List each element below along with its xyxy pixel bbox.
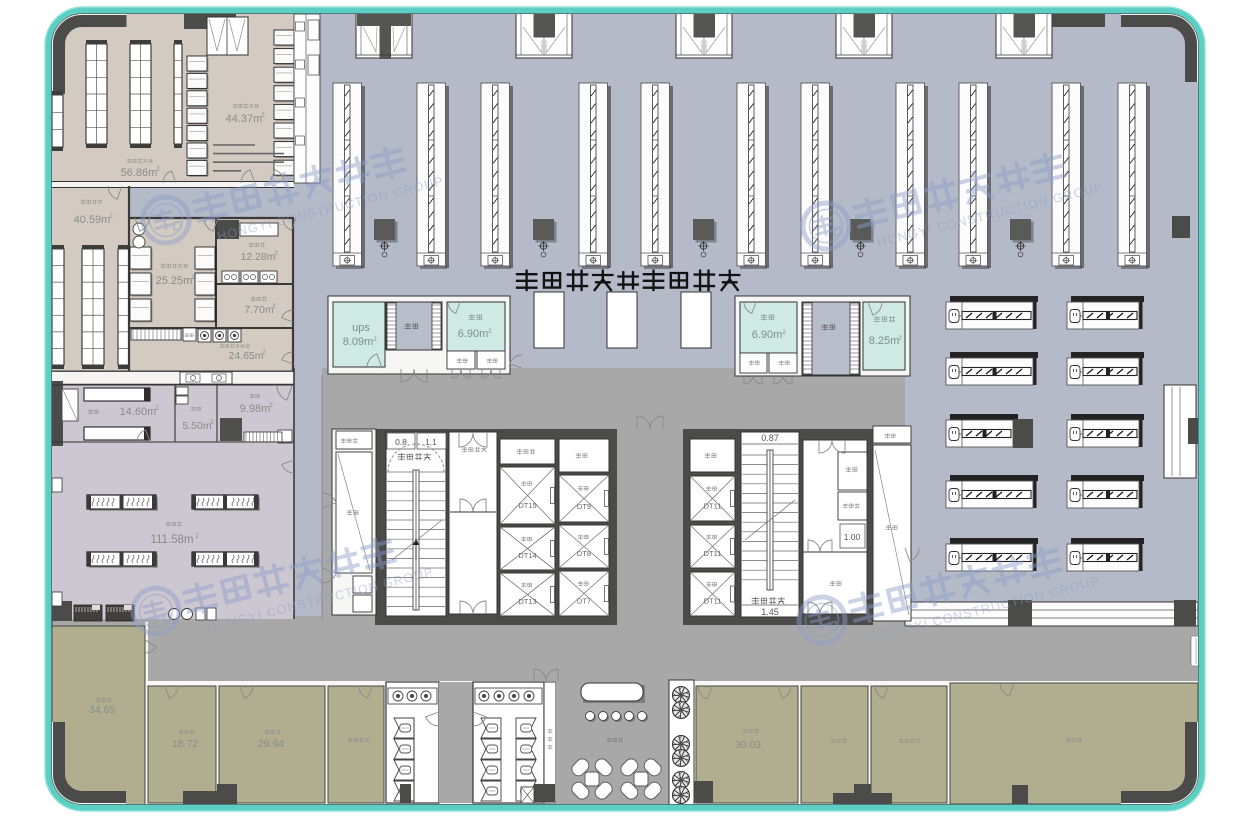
svg-text:25.25m: 25.25m — [156, 275, 193, 287]
svg-text:18.72: 18.72 — [172, 738, 198, 750]
svg-text:34.65: 34.65 — [89, 704, 115, 716]
svg-text:29.94: 29.94 — [258, 738, 284, 750]
svg-text:DT15: DT15 — [518, 501, 536, 510]
svg-text:1.00: 1.00 — [844, 532, 861, 542]
svg-text:DT14: DT14 — [518, 551, 536, 560]
svg-text:DT9: DT9 — [577, 502, 591, 511]
svg-text:8.09m: 8.09m — [343, 336, 374, 348]
svg-text:12.28m: 12.28m — [240, 251, 275, 263]
svg-text:6.90m: 6.90m — [752, 329, 783, 341]
svg-text:24.65m: 24.65m — [228, 350, 263, 362]
svg-text:9.98m: 9.98m — [240, 403, 271, 415]
svg-text:ups: ups — [352, 322, 370, 334]
svg-text:DT11: DT11 — [704, 597, 722, 606]
svg-text:1.1: 1.1 — [425, 437, 437, 447]
svg-text:8.25m: 8.25m — [869, 335, 900, 347]
svg-text:DT11: DT11 — [704, 549, 722, 558]
svg-text:DT7: DT7 — [577, 596, 591, 605]
svg-text:56.86m: 56.86m — [121, 167, 158, 179]
svg-text:DT11: DT11 — [704, 501, 722, 510]
svg-text:0.8: 0.8 — [395, 437, 407, 447]
svg-text:14.60m: 14.60m — [120, 406, 157, 418]
svg-text:7.70m: 7.70m — [244, 304, 273, 316]
svg-text:1.45: 1.45 — [761, 607, 779, 617]
svg-text:111.58m: 111.58m — [150, 534, 193, 546]
svg-text:6.90m: 6.90m — [458, 328, 489, 340]
svg-text:0.87: 0.87 — [761, 433, 779, 443]
svg-text:DT8: DT8 — [577, 549, 591, 558]
svg-text:30.03: 30.03 — [735, 739, 761, 751]
svg-text:DT13: DT13 — [518, 597, 536, 606]
svg-text:40.59m: 40.59m — [74, 214, 111, 226]
svg-text:5.50m: 5.50m — [182, 420, 211, 432]
svg-text:44.37m: 44.37m — [226, 113, 263, 125]
